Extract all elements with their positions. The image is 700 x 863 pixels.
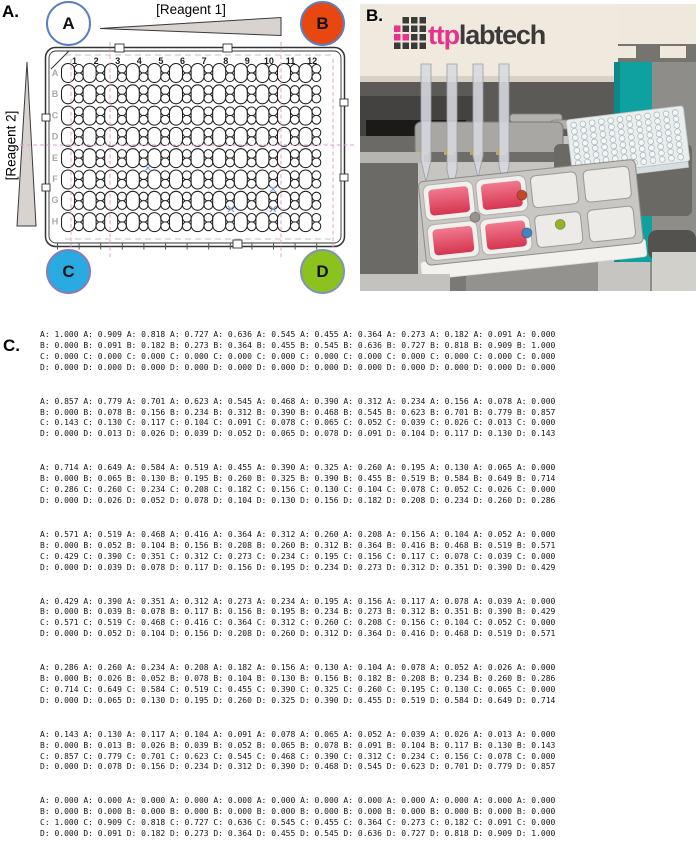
well-circle	[74, 158, 83, 167]
microplate-well	[647, 132, 653, 138]
well-pill	[213, 170, 226, 189]
plate-row-label: D	[52, 132, 59, 142]
plate-well	[62, 191, 84, 210]
plate-right-notch	[340, 174, 348, 181]
plate-well	[213, 170, 235, 189]
well-circle	[118, 115, 127, 124]
plate-column-label: 1	[72, 56, 77, 66]
well-pill	[170, 170, 183, 189]
microplate-well	[639, 146, 645, 152]
plate-well	[126, 127, 148, 146]
well-circle	[74, 115, 83, 124]
plate-well	[148, 149, 170, 168]
well-circle	[118, 158, 127, 167]
logo-grid-square	[420, 26, 427, 33]
well-circle	[96, 150, 105, 159]
well-pill	[213, 213, 226, 232]
well-circle	[290, 107, 299, 116]
logo-grid-square	[411, 26, 418, 33]
plate-row-label: G	[51, 195, 58, 205]
reservoir-liquid	[485, 220, 527, 250]
concentration-blocks: A: 1.000 A: 0.909 A: 0.818 A: 0.727 A: 0…	[40, 330, 555, 863]
reservoir-filled	[422, 180, 475, 221]
well-pill	[191, 85, 204, 104]
well-pill	[234, 149, 247, 168]
well-circle	[247, 201, 256, 210]
well-pill	[213, 149, 226, 168]
concentration-line: D: 0.000 D: 0.078 D: 0.156 D: 0.234 D: 0…	[40, 762, 555, 773]
microplate-well	[580, 127, 586, 133]
well-circle	[312, 137, 321, 146]
plate-well	[83, 85, 105, 104]
well-pill	[148, 127, 161, 146]
concentration-line: A: 0.286 A: 0.260 A: 0.234 A: 0.208 A: 0…	[40, 663, 555, 674]
plate-well	[62, 106, 84, 125]
panel-c-label: C.	[3, 336, 20, 356]
well-pill	[126, 127, 139, 146]
plate-well	[191, 213, 213, 232]
plate-well	[234, 191, 256, 210]
well-circle	[74, 201, 83, 210]
plate-well	[213, 106, 235, 125]
concentration-line: B: 0.000 B: 0.065 B: 0.130 B: 0.195 B: 0…	[40, 474, 555, 485]
plate-well	[299, 170, 321, 189]
well-pill	[105, 191, 118, 210]
microplate-well	[636, 120, 642, 126]
plate-well	[256, 64, 278, 83]
plate-well	[234, 64, 256, 83]
panel-c-concentration-grid: C. A: 1.000 A: 0.909 A: 0.818 A: 0.727 A…	[0, 328, 700, 836]
plate-row-label: B	[52, 89, 59, 99]
well-pill	[278, 170, 291, 189]
well-circle	[247, 150, 256, 159]
well-pill	[278, 191, 291, 210]
reagent-circle-c: C	[46, 249, 91, 294]
microplate-well	[600, 131, 606, 137]
plate-well	[126, 191, 148, 210]
well-circle	[182, 192, 191, 201]
well-circle	[96, 222, 105, 231]
well-circle	[312, 201, 321, 210]
concentration-line: B: 0.000 B: 0.078 B: 0.156 B: 0.234 B: 0…	[40, 408, 555, 419]
plate-well	[256, 127, 278, 146]
well-circle	[290, 171, 299, 180]
well-pill	[256, 64, 269, 83]
well-circle	[118, 192, 127, 201]
well-circle	[269, 86, 278, 95]
plate-well	[105, 127, 127, 146]
well-circle	[74, 137, 83, 146]
well-circle	[204, 222, 213, 231]
well-circle	[290, 150, 299, 159]
reagent-circle-b: B	[300, 1, 345, 46]
well-pill	[299, 64, 312, 83]
plate-row-label: A	[52, 68, 59, 78]
well-circle	[269, 94, 278, 103]
microplate-well	[650, 157, 656, 163]
well-circle	[96, 137, 105, 146]
well-circle	[96, 214, 105, 223]
well-circle	[96, 94, 105, 103]
microplate-well	[647, 138, 653, 144]
well-circle	[269, 73, 278, 82]
logo-grid-square	[403, 17, 410, 24]
concentration-line: D: 0.000 D: 0.091 D: 0.182 D: 0.273 D: 0…	[40, 829, 555, 840]
plate-well	[148, 191, 170, 210]
microplate-well	[637, 127, 643, 133]
well-circle	[226, 150, 235, 159]
plate-column-label: 8	[223, 56, 228, 66]
well-circle	[182, 150, 191, 159]
well-circle	[161, 150, 170, 159]
well-circle	[161, 86, 170, 95]
plate-well	[126, 170, 148, 189]
concentration-block: A: 0.857 A: 0.779 A: 0.701 A: 0.623 A: 0…	[40, 397, 555, 441]
well-circle	[161, 214, 170, 223]
well-circle	[226, 86, 235, 95]
well-circle	[161, 158, 170, 167]
well-pill	[278, 64, 291, 83]
well-pill	[191, 64, 204, 83]
pipette-tip	[473, 64, 483, 178]
plate-well	[213, 213, 235, 232]
well-pill	[213, 64, 226, 83]
well-circle	[139, 158, 148, 167]
plate-well	[126, 85, 148, 104]
plate-well	[278, 85, 300, 104]
microplate-well	[607, 117, 613, 123]
microplate-well	[573, 141, 579, 147]
well-pill	[256, 85, 269, 104]
well-circle	[74, 150, 83, 159]
well-circle	[247, 179, 256, 188]
plate-column-label: 3	[115, 56, 120, 66]
plate-well	[299, 213, 321, 232]
logo-grid-square	[394, 34, 401, 41]
well-circle	[290, 94, 299, 103]
well-pill	[62, 213, 75, 232]
microplate-well	[640, 152, 646, 158]
plate-well	[62, 64, 84, 83]
well-circle	[182, 107, 191, 116]
plate-well	[83, 64, 105, 83]
plate-well	[83, 106, 105, 125]
well-circle	[182, 158, 191, 167]
microplate-well	[582, 140, 588, 146]
well-pill	[213, 85, 226, 104]
plate-well	[278, 170, 300, 189]
concentration-block: A: 0.000 A: 0.000 A: 0.000 A: 0.000 A: 0…	[40, 796, 555, 840]
well-pill	[62, 191, 75, 210]
well-pill	[62, 170, 75, 189]
concentration-line: C: 0.286 C: 0.260 C: 0.234 C: 0.208 C: 0…	[40, 485, 555, 496]
well-circle	[204, 94, 213, 103]
microplate-well	[629, 140, 635, 146]
well-circle	[74, 73, 83, 82]
well-circle	[204, 73, 213, 82]
bracket-slot	[660, 46, 686, 58]
well-pill	[256, 106, 269, 125]
well-pill	[126, 170, 139, 189]
microplate-well	[644, 113, 650, 119]
dispenser-head-edge	[360, 76, 618, 82]
well-circle	[96, 179, 105, 188]
well-circle	[204, 214, 213, 223]
plate-well	[126, 106, 148, 125]
well-circle	[312, 158, 321, 167]
well-circle	[182, 128, 191, 137]
plate-well	[213, 127, 235, 146]
plate-diagram-svg: 123456789101112 ABCDEFGH	[15, 14, 360, 286]
plate-well	[105, 170, 127, 189]
plate-well	[299, 149, 321, 168]
microplate-well	[610, 143, 616, 149]
microplate-well	[630, 147, 636, 153]
reservoir-slot-empty	[530, 171, 579, 208]
well-circle	[161, 128, 170, 137]
well-circle	[139, 179, 148, 188]
microplate-well	[598, 118, 604, 124]
microplate-well	[663, 111, 669, 117]
well-circle	[182, 94, 191, 103]
well-circle	[74, 86, 83, 95]
microplate-well	[574, 147, 580, 153]
well-circle	[74, 128, 83, 137]
well-circle	[204, 86, 213, 95]
plate-well	[105, 213, 127, 232]
well-circle	[312, 86, 321, 95]
plate-well	[191, 170, 213, 189]
microplate-well	[676, 141, 682, 147]
microplate-well	[592, 145, 598, 151]
concentration-line: D: 0.000 D: 0.000 D: 0.000 D: 0.000 D: 0…	[40, 363, 555, 374]
well-circle	[74, 107, 83, 116]
concentration-line: A: 0.714 A: 0.649 A: 0.584 A: 0.519 A: 0…	[40, 463, 555, 474]
well-pill	[191, 191, 204, 210]
well-circle	[312, 214, 321, 223]
well-pill	[148, 170, 161, 189]
well-circle	[161, 137, 170, 146]
microplate-well	[635, 114, 641, 120]
microplate-well	[619, 135, 625, 141]
concentration-line: B: 0.000 B: 0.000 B: 0.000 B: 0.000 B: 0…	[40, 807, 555, 818]
plate-well	[256, 85, 278, 104]
plate-well	[83, 191, 105, 210]
plate-top-notch	[223, 44, 232, 52]
well-circle	[290, 214, 299, 223]
well-circle	[161, 179, 170, 188]
microplate-well	[659, 156, 665, 162]
plate-right-notch	[340, 99, 348, 106]
microplate-well	[664, 117, 670, 123]
microplate-well	[609, 130, 615, 136]
plate-column-label: 11	[286, 56, 296, 66]
well-circle	[204, 107, 213, 116]
well-circle	[139, 115, 148, 124]
plate-well	[62, 170, 84, 189]
well-circle	[226, 222, 235, 231]
plate-well	[170, 106, 192, 125]
plate-column-label: 10	[264, 56, 274, 66]
microplate-well	[649, 151, 655, 157]
figure-page: { "panel_a": { "label": "A.", "reagent1_…	[0, 0, 700, 836]
plate-well	[191, 85, 213, 104]
well-pill	[83, 191, 96, 210]
plate-well	[126, 64, 148, 83]
well-circle	[312, 150, 321, 159]
well-circle	[226, 128, 235, 137]
well-circle	[247, 214, 256, 223]
well-pill	[234, 64, 247, 83]
microplate-well	[637, 133, 643, 139]
plate-well	[62, 85, 84, 104]
well-pill	[62, 106, 75, 125]
well-pill	[299, 106, 312, 125]
well-circle	[74, 94, 83, 103]
logo-grid-square	[411, 34, 418, 41]
plate-well	[83, 213, 105, 232]
well-circle	[290, 73, 299, 82]
microplate-well	[583, 146, 589, 152]
plate-top-notch	[115, 44, 124, 52]
well-circle	[161, 201, 170, 210]
well-circle	[312, 128, 321, 137]
reservoir-liquid	[432, 226, 474, 256]
tip-clamp-plate	[415, 122, 563, 156]
well-circle	[290, 86, 299, 95]
panel-a-label: A.	[2, 2, 19, 22]
concentration-line: C: 0.429 C: 0.390 C: 0.351 C: 0.312 C: 0…	[40, 552, 555, 563]
well-circle	[182, 86, 191, 95]
well-circle	[74, 171, 83, 180]
plate-well	[170, 85, 192, 104]
well-pill	[83, 85, 96, 104]
plate-well	[278, 64, 300, 83]
microplate-well	[656, 131, 662, 137]
well-circle	[247, 115, 256, 124]
well-circle	[269, 214, 278, 223]
microplate-well	[581, 133, 587, 139]
well-pill	[191, 213, 204, 232]
well-circle	[139, 94, 148, 103]
well-pill	[105, 213, 118, 232]
microplate-well	[608, 124, 614, 130]
well-circle	[204, 128, 213, 137]
concentration-line: B: 0.000 B: 0.052 B: 0.104 B: 0.156 B: 0…	[40, 541, 555, 552]
reagent-circle-c-letter: C	[62, 262, 74, 282]
concentration-line: D: 0.000 D: 0.065 D: 0.130 D: 0.195 D: 0…	[40, 696, 555, 707]
well-pill	[278, 106, 291, 125]
well-pill	[170, 191, 183, 210]
plate-well	[191, 64, 213, 83]
plate-well	[105, 149, 127, 168]
well-circle	[161, 115, 170, 124]
well-pill	[299, 127, 312, 146]
microplate-well	[674, 122, 680, 128]
reagent-circle-d-letter: D	[316, 262, 328, 282]
microplate-well	[570, 122, 576, 128]
microplate-well	[674, 128, 680, 134]
well-circle	[204, 171, 213, 180]
well-pill	[62, 149, 75, 168]
microplate-well	[667, 142, 673, 148]
plate-row-label: E	[52, 153, 58, 163]
concentration-line: D: 0.000 D: 0.013 D: 0.026 D: 0.039 D: 0…	[40, 429, 555, 440]
microplate-well	[574, 154, 580, 160]
microplate-well	[664, 123, 670, 129]
plate-well	[148, 64, 170, 83]
panel-b-instrument-photo: B.	[360, 4, 696, 291]
concentration-line: C: 0.857 C: 0.779 C: 0.701 C: 0.623 C: 0…	[40, 752, 555, 763]
well-circle	[182, 201, 191, 210]
concentration-line: B: 0.000 B: 0.013 B: 0.026 B: 0.039 B: 0…	[40, 741, 555, 752]
well-pill	[234, 191, 247, 210]
well-circle	[269, 150, 278, 159]
plate-column-label: 12	[307, 56, 317, 66]
plate-column-label: 6	[180, 56, 185, 66]
plate-well	[83, 127, 105, 146]
well-circle	[74, 214, 83, 223]
microplate-well	[654, 118, 660, 124]
plate-left-notch	[42, 114, 50, 121]
well-circle	[118, 94, 127, 103]
plate-well	[191, 149, 213, 168]
well-pill	[148, 149, 161, 168]
well-circle	[182, 179, 191, 188]
well-circle	[290, 158, 299, 167]
well-circle	[247, 128, 256, 137]
microplate-well	[580, 121, 586, 127]
logo-text-ttp: ttp	[428, 20, 460, 50]
microplate-well	[626, 115, 632, 121]
microplate-well	[675, 135, 681, 141]
microplate-well	[617, 123, 623, 129]
plate-column-label: 2	[94, 56, 99, 66]
plate-well	[213, 85, 235, 104]
plate-well	[256, 213, 278, 232]
well-circle	[118, 137, 127, 146]
plate-well	[299, 191, 321, 210]
well-circle	[161, 192, 170, 201]
concentration-line: A: 0.143 A: 0.130 A: 0.117 A: 0.104 A: 0…	[40, 730, 555, 741]
well-circle	[247, 222, 256, 231]
well-circle	[96, 86, 105, 95]
plate-well	[105, 106, 127, 125]
concentration-block: A: 1.000 A: 0.909 A: 0.818 A: 0.727 A: 0…	[40, 330, 555, 374]
microplate-well	[571, 128, 577, 134]
well-circle	[247, 137, 256, 146]
well-circle	[118, 86, 127, 95]
microplate-well	[631, 153, 637, 159]
well-pill	[148, 85, 161, 104]
well-circle	[118, 73, 127, 82]
microplate-well	[627, 121, 633, 127]
well-pill	[234, 85, 247, 104]
microplate-well	[655, 124, 661, 130]
reagent-circle-d: D	[300, 249, 345, 294]
plate-well	[234, 213, 256, 232]
well-pill	[170, 149, 183, 168]
concentration-line: B: 0.000 B: 0.039 B: 0.078 B: 0.117 B: 0…	[40, 607, 555, 618]
well-circle	[226, 214, 235, 223]
well-pill	[148, 213, 161, 232]
well-circle	[161, 73, 170, 82]
well-circle	[269, 128, 278, 137]
pipette-tip	[499, 64, 509, 188]
well-pill	[256, 191, 269, 210]
well-pill	[191, 149, 204, 168]
well-pill	[126, 149, 139, 168]
